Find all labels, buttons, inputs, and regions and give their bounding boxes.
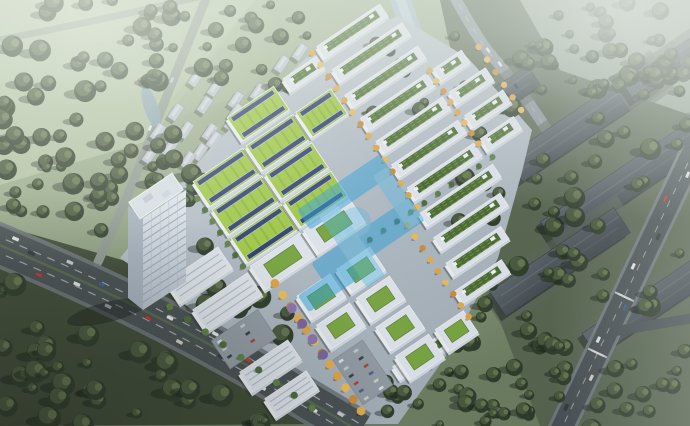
atmospheric-haze-overlay <box>0 0 690 426</box>
aerial-site-rendering <box>0 0 690 426</box>
rendering-canvas <box>0 0 690 426</box>
